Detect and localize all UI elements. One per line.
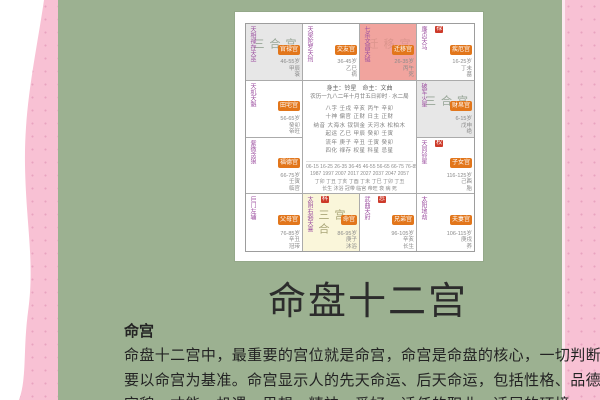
left-wave-margin bbox=[0, 0, 60, 400]
twelve-palace-grid: 三合宫 天相禄存天巫 官禄宫 46-55岁 甲辰 衰 天梁陀罗天刑 交友宫 36… bbox=[245, 23, 475, 252]
palace-meta: 16-25岁 丁未 墓 bbox=[452, 59, 472, 79]
chart-info-row: 四化 禄存 权星 科星 忌星 bbox=[306, 147, 413, 156]
page-title: 命盘十二宫 bbox=[116, 270, 600, 325]
chart-info-row: 流年 庚子 辛丑 壬寅 癸卯 bbox=[306, 139, 413, 148]
chart-header-line2: 农历一九八二年十月廿五日卯时 · 水二局 bbox=[306, 93, 413, 101]
palace-meta: 56-65岁 癸卯 帝旺 bbox=[280, 116, 300, 136]
chart-center-info: 身主：铃星 命主：文曲 农历一九八二年十月廿五日卯时 · 水二局 八字 壬戌 辛… bbox=[303, 81, 417, 195]
article-body: 命宫 命盘十二宫中，最重要的宫位就是命宫，命宫是命盘的核心，一切判断都要以命宫为… bbox=[124, 322, 600, 400]
decade-limits-table: 06-15 16-25 26-35 36-45 46-55 56-65 66-7… bbox=[306, 161, 413, 194]
palace-cell: 太阳地劫 夫妻宫 106-115岁 庚戌 养 bbox=[417, 194, 474, 251]
palace-name-badge: 福德宫 bbox=[278, 158, 300, 168]
palace-cell: 天梁陀罗天刑 交友宫 36-45岁 乙巳 病 bbox=[303, 24, 360, 81]
palace-cell: 紫微贪狼 福德宫 66-75岁 壬寅 临官 bbox=[246, 138, 303, 195]
palace-meta: 66-75岁 壬寅 临官 bbox=[280, 173, 300, 193]
palace-cell: 三合宫 太阴右弼天喜 命宫 86-95岁 庚子 沐浴 科 bbox=[303, 194, 360, 251]
palace-name-badge: 命宫 bbox=[341, 215, 357, 225]
chart-info-row: 起运 乙巳 甲辰 癸卯 壬寅 bbox=[306, 130, 413, 139]
palace-stars: 天同铃星 bbox=[419, 140, 426, 176]
palace-stars: 天相禄存天巫 bbox=[248, 26, 255, 62]
palace-meta: 6-15岁 戊申 绝 bbox=[455, 116, 472, 136]
palace-stars: 太阳地劫 bbox=[419, 196, 426, 232]
palace-name-badge: 迁移宫 bbox=[392, 45, 414, 55]
palace-cell: 天同铃星 子女宫 116-125岁 己酉 胎 权 bbox=[417, 138, 474, 195]
palace-meta: 116-125岁 己酉 胎 bbox=[447, 173, 472, 193]
chart-info-row: 纳音 大海水 钗钏金 天河水 松柏木 bbox=[306, 122, 413, 131]
palace-cell: 武曲天府 兄弟宫 96-105岁 辛亥 长生 忌 bbox=[360, 194, 417, 251]
sihua-mark: 忌 bbox=[378, 196, 386, 203]
palace-meta: 36-45岁 乙巳 病 bbox=[337, 59, 357, 79]
decade-limits-row: 长生 沐浴 冠带 临官 帝旺 衰 病 死 bbox=[306, 186, 413, 194]
palace-stars: 七杀文昌天钺 bbox=[362, 26, 369, 62]
palace-name-badge: 父母宫 bbox=[278, 215, 300, 225]
sihua-mark: 权 bbox=[435, 140, 443, 147]
palace-cell-selected: 迁移宫 七杀文昌天钺 迁移宫 26-35岁 丙午 死 bbox=[360, 24, 417, 81]
palace-meta: 76-85岁 辛丑 冠带 bbox=[280, 231, 300, 251]
palace-meta: 96-105岁 辛亥 长生 bbox=[391, 231, 414, 251]
palace-stars: 巨门左辅 bbox=[248, 196, 255, 232]
palace-stars: 天梁陀罗天刑 bbox=[305, 26, 312, 62]
palace-name-badge: 兄弟宫 bbox=[392, 215, 414, 225]
chart-info-row: 十神 偏官 正财 日主 正财 bbox=[306, 113, 413, 122]
content-panel: 三合宫 天相禄存天巫 官禄宫 46-55岁 甲辰 衰 天梁陀罗天刑 交友宫 36… bbox=[58, 0, 562, 400]
section-paragraph: 命盘十二宫中，最重要的宫位就是命宫，命宫是命盘的核心，一切判断都要以命宫为基准。… bbox=[124, 344, 600, 400]
section-heading: 命宫 bbox=[124, 322, 600, 342]
sihua-mark: 科 bbox=[321, 196, 329, 203]
palace-name-badge: 夫妻宫 bbox=[450, 215, 472, 225]
palace-stars: 武曲天府 bbox=[362, 196, 369, 232]
palace-meta: 26-35岁 丙午 死 bbox=[394, 59, 414, 79]
destiny-chart-image: 三合宫 天相禄存天巫 官禄宫 46-55岁 甲辰 衰 天梁陀罗天刑 交友宫 36… bbox=[235, 12, 483, 261]
palace-name-badge: 官禄宫 bbox=[278, 45, 300, 55]
palace-name-badge: 财帛宫 bbox=[450, 101, 472, 111]
palace-stars: 太阴右弼天喜 bbox=[305, 196, 312, 232]
page: 三合宫 天相禄存天巫 官禄宫 46-55岁 甲辰 衰 天梁陀罗天刑 交友宫 36… bbox=[0, 0, 600, 400]
palace-cell: 三合宫 天相禄存天巫 官禄宫 46-55岁 甲辰 衰 bbox=[246, 24, 303, 81]
chart-info-row: 八字 壬戌 辛亥 丙午 辛卯 bbox=[306, 105, 413, 114]
palace-cell: 三合宫 破军火星 财帛宫 6-15岁 戊申 绝 bbox=[417, 81, 474, 138]
palace-cell: 天机天魁 田宅宫 56-65岁 癸卯 帝旺 bbox=[246, 81, 303, 138]
palace-stars: 天机天魁 bbox=[248, 83, 255, 119]
chart-header-line1: 身主：铃星 命主：文曲 bbox=[306, 85, 413, 93]
palace-stars: 紫微贪狼 bbox=[248, 140, 255, 176]
palace-meta: 46-55岁 甲辰 衰 bbox=[280, 59, 300, 79]
palace-name-badge: 子女宫 bbox=[450, 158, 472, 168]
palace-stars: 廉贞天马 bbox=[419, 26, 426, 62]
palace-stars: 破军火星 bbox=[419, 83, 426, 119]
palace-meta: 86-95岁 庚子 沐浴 bbox=[337, 231, 357, 251]
palace-name-badge: 交友宫 bbox=[335, 45, 357, 55]
decade-limits-row: 06-15 16-25 26-35 36-45 46-55 56-65 66-7… bbox=[306, 164, 413, 172]
palace-meta: 106-115岁 庚戌 养 bbox=[447, 231, 472, 251]
palace-name-badge: 疾厄宫 bbox=[450, 45, 472, 55]
palace-name-badge: 田宅宫 bbox=[278, 101, 300, 111]
palace-cell: 巨门左辅 父母宫 76-85岁 辛丑 冠带 bbox=[246, 194, 303, 251]
decade-limits-row: 1987 1997 2007 2017 2027 2037 2047 2057 bbox=[306, 171, 413, 179]
palace-cell: 廉贞天马 疾厄宫 16-25岁 丁未 墓 禄 bbox=[417, 24, 474, 81]
sihua-mark: 禄 bbox=[435, 26, 443, 33]
